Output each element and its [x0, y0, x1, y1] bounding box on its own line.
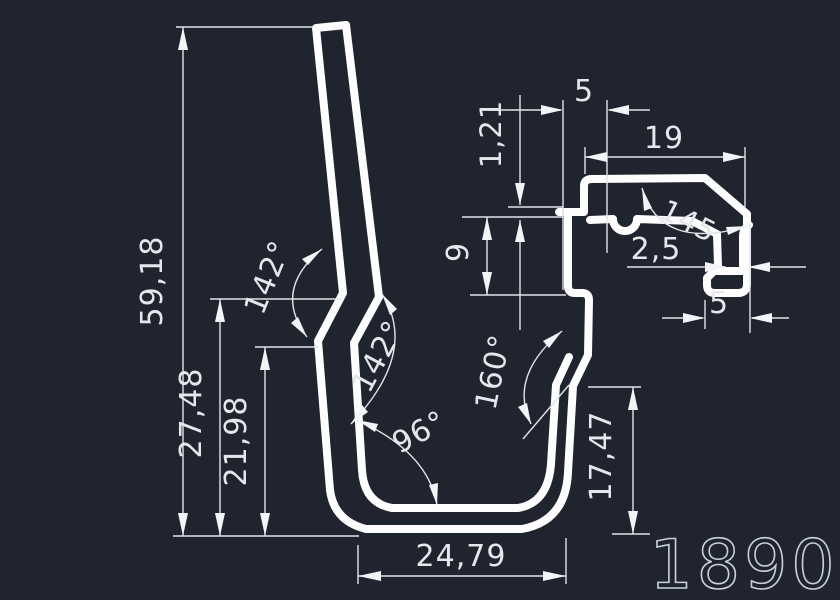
profile-outline: [316, 25, 749, 529]
dim-hook-wall-thickness: 2,5: [631, 232, 682, 267]
dim-overall-height: 59,18: [135, 236, 170, 327]
angle-upper-bend: 142°: [238, 236, 299, 320]
dim-ledge-width: 5: [574, 74, 594, 109]
angle-base-corner: 96°: [387, 404, 453, 461]
dim-channel-width: 24,79: [416, 539, 507, 574]
dim-right-wall-height: 17,47: [584, 411, 619, 502]
dim-height-upper-bend: 27,48: [174, 368, 209, 459]
dimension-labels: 59,18 27,48 21,98 24,79 17,47 9 1,21 5 1…: [135, 74, 729, 574]
dim-foot-width: 5: [709, 286, 729, 321]
cad-canvas[interactable]: 59,18 27,48 21,98 24,79 17,47 9 1,21 5 1…: [0, 0, 840, 600]
part-number: 1890: [649, 526, 838, 600]
profile-inner-path: [346, 25, 569, 508]
technical-drawing: 59,18 27,48 21,98 24,79 17,47 9 1,21 5 1…: [0, 0, 840, 600]
dim-mouth-wall-height: 9: [441, 242, 476, 262]
dim-ledge-thickness: 1,21: [474, 100, 508, 169]
dim-height-lower-bend: 21,98: [219, 396, 254, 487]
dim-arm-width: 19: [644, 121, 684, 156]
angle-right-wall-kink: 160°: [469, 331, 519, 413]
